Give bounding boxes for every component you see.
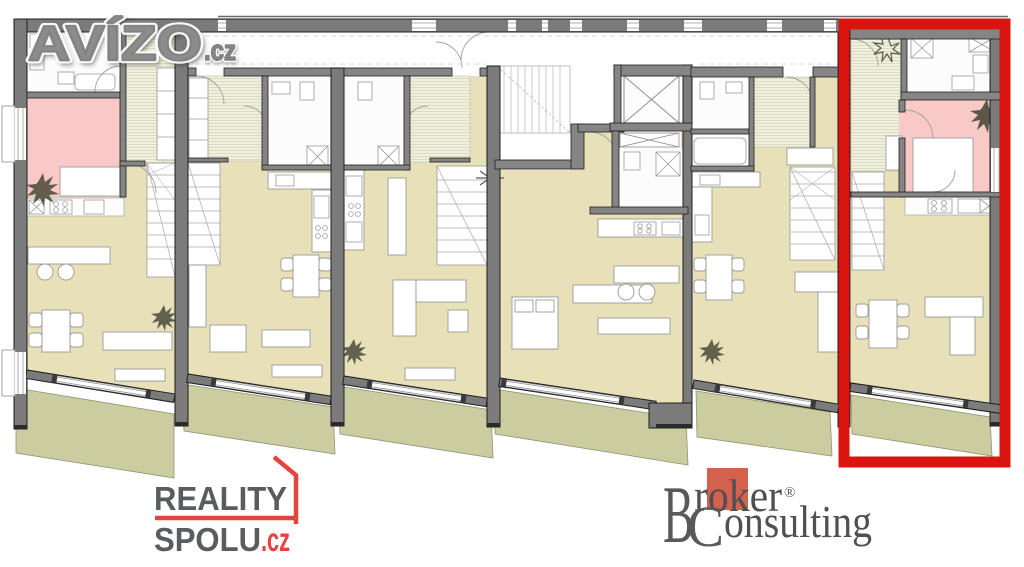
svg-text:SPOLU: SPOLU <box>154 521 261 558</box>
svg-text:onsulting: onsulting <box>724 496 872 547</box>
svg-text:C: C <box>687 494 724 559</box>
svg-text:.cz: .cz <box>204 35 236 67</box>
svg-text:AVÍZO: AVÍZO <box>28 17 202 71</box>
svg-text:.cz: .cz <box>261 521 290 558</box>
svg-text:REALITY: REALITY <box>154 480 287 517</box>
